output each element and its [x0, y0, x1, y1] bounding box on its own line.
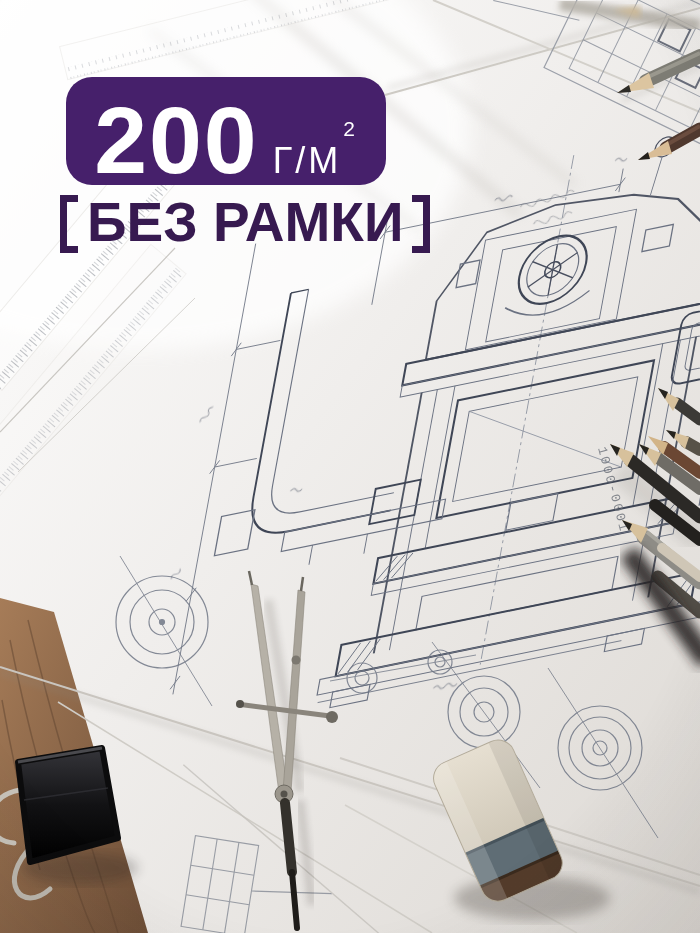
weight-badge-content: 200 Г/М2: [94, 86, 358, 194]
weight-unit: Г/М2: [273, 140, 358, 182]
no-frame-label: БЕЗ РАМКИ: [60, 188, 430, 260]
bracket-left-icon: [60, 195, 78, 253]
weight-unit-text: Г/М: [273, 140, 341, 181]
product-image: 1000-0001: [0, 0, 700, 933]
no-frame-label-text: БЕЗ РАМКИ: [78, 186, 412, 258]
weight-value: 200: [94, 86, 259, 194]
weight-unit-superscript: 2: [343, 117, 358, 140]
weight-badge: 200 Г/М2: [66, 77, 386, 185]
bracket-right-icon: [412, 195, 430, 253]
